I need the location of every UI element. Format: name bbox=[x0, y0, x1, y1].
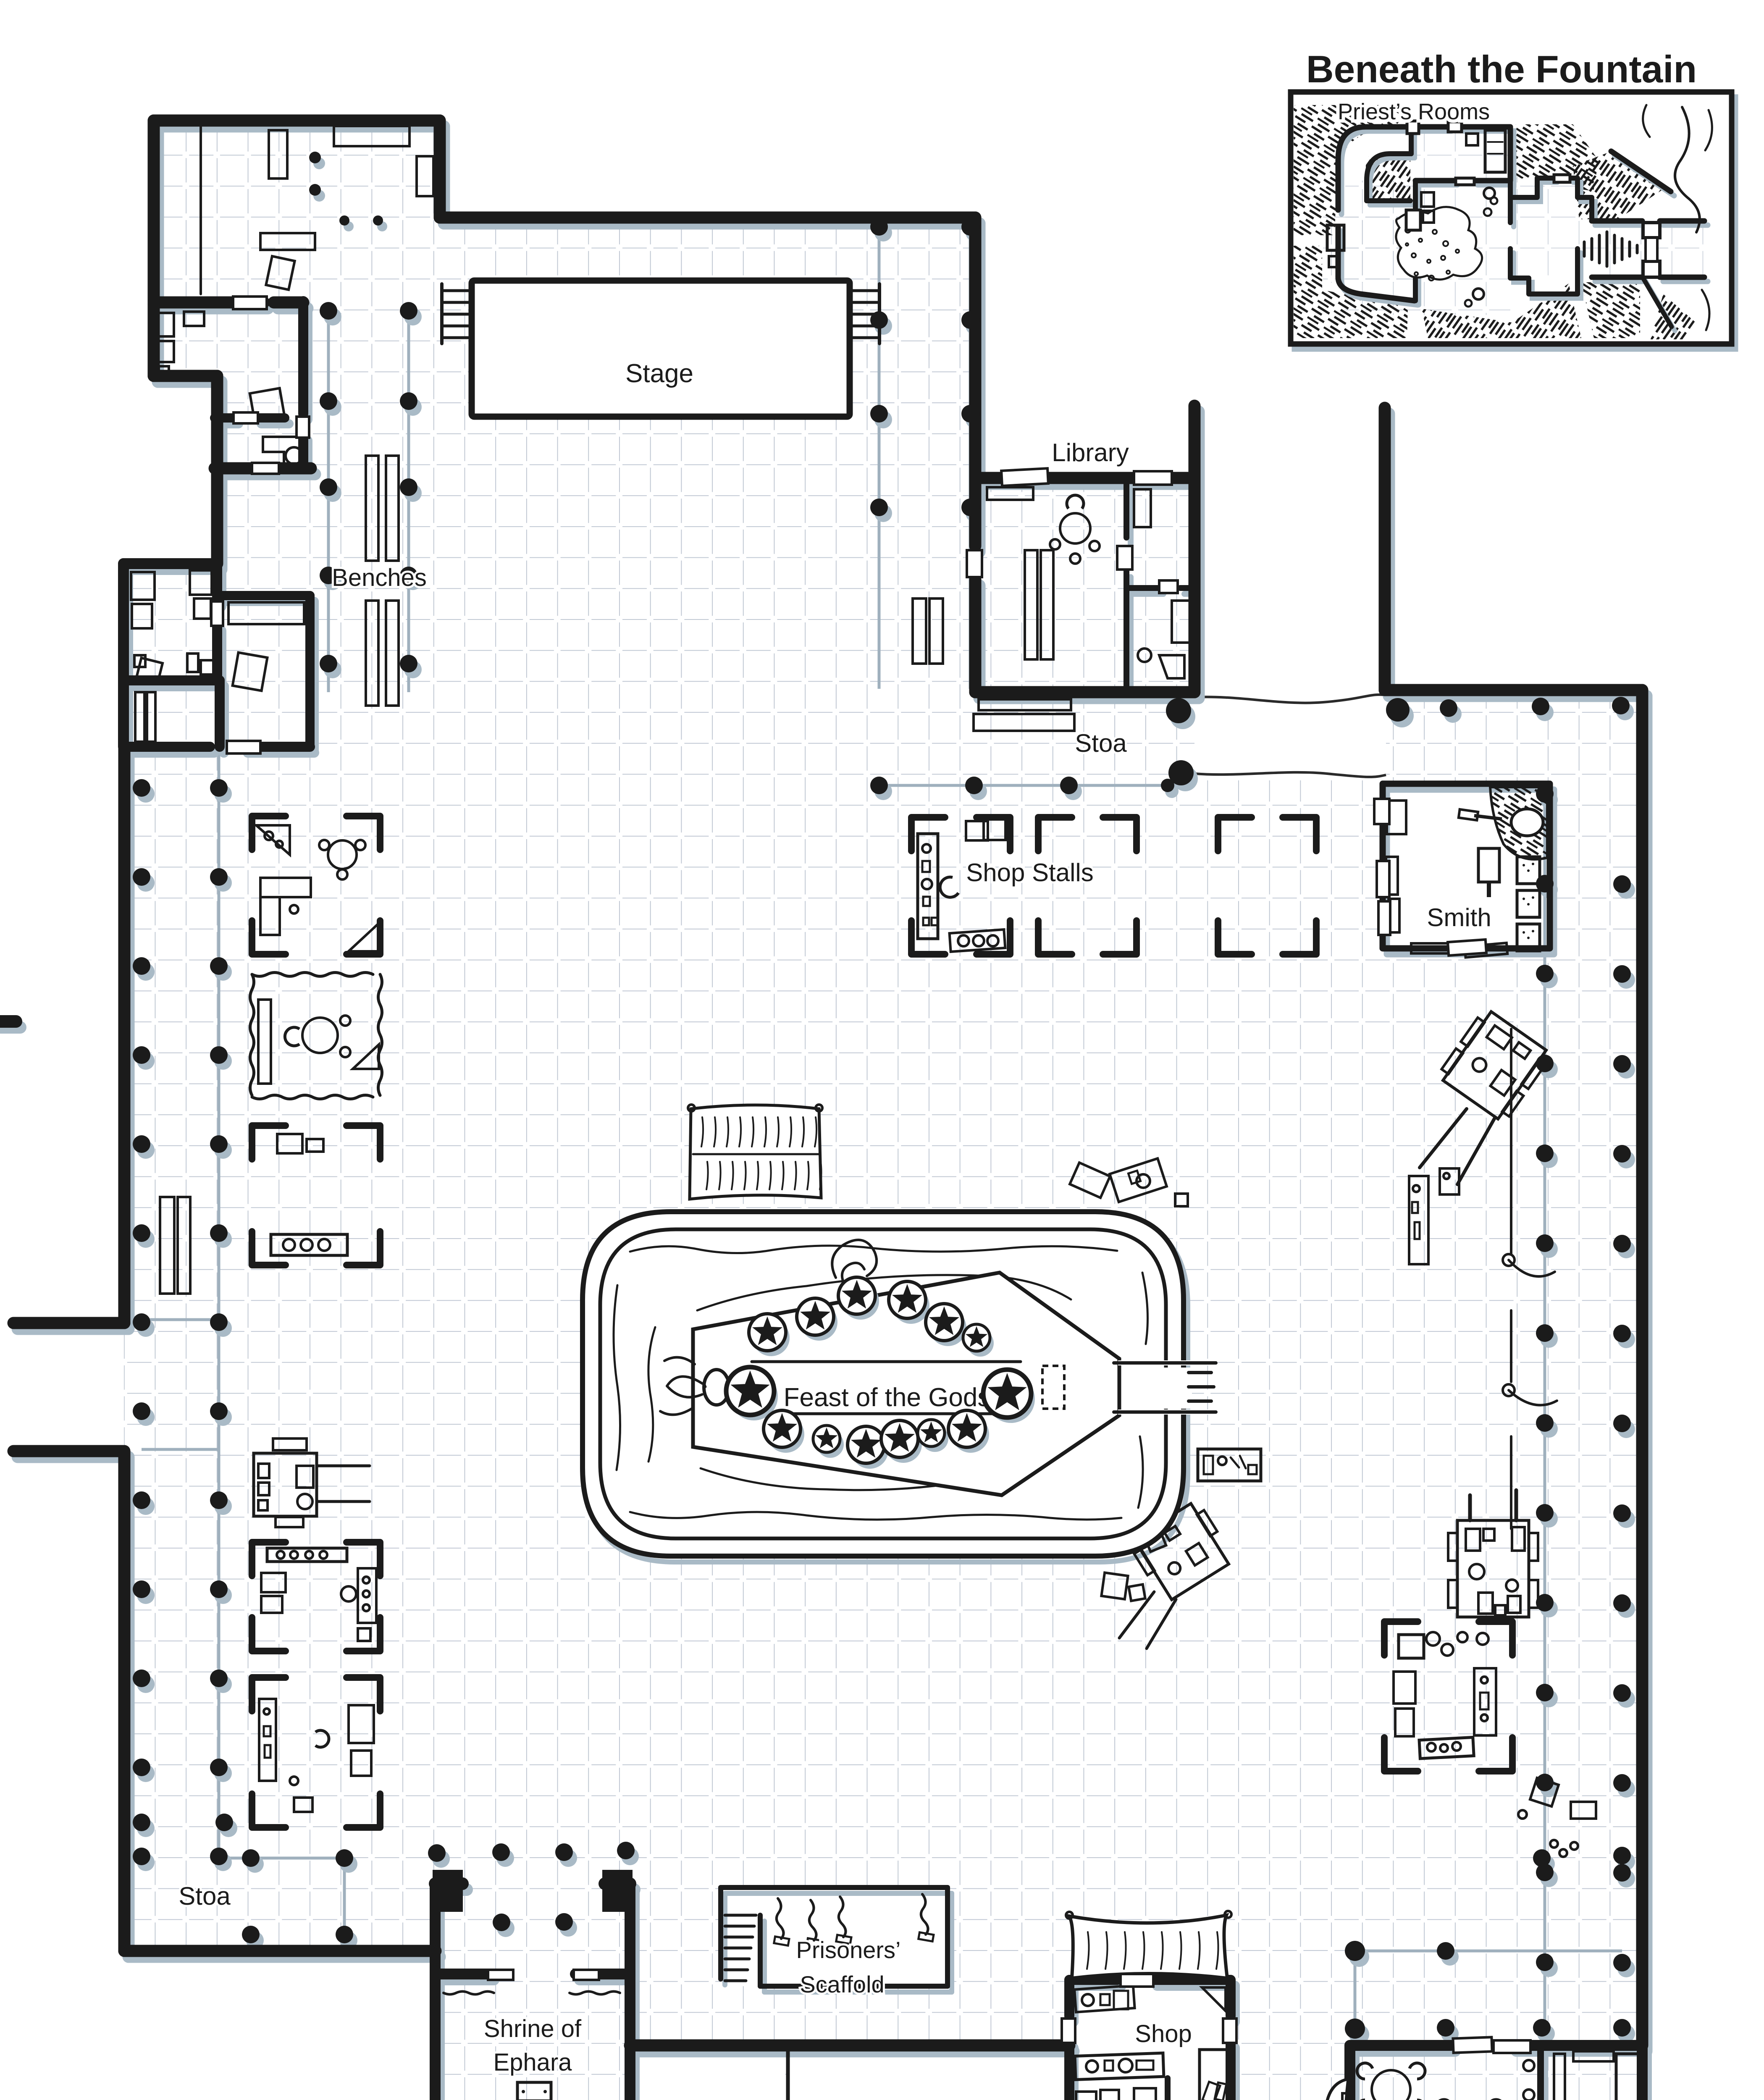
svg-text:Scaffold: Scaffold bbox=[800, 1971, 884, 1998]
svg-text:Shop: Shop bbox=[1135, 2020, 1192, 2047]
svg-text:Priest’s Rooms: Priest’s Rooms bbox=[1338, 99, 1490, 124]
svg-text:Smith: Smith bbox=[1427, 903, 1491, 932]
svg-text:Shop Stalls: Shop Stalls bbox=[966, 858, 1094, 887]
svg-text:Feast of the Gods: Feast of the Gods bbox=[784, 1383, 991, 1412]
svg-text:Prisoners’: Prisoners’ bbox=[796, 1937, 901, 1963]
svg-text:Shrine of: Shrine of bbox=[484, 2015, 582, 2042]
svg-text:Stage: Stage bbox=[625, 359, 693, 388]
svg-text:Stoa: Stoa bbox=[178, 1882, 231, 1910]
svg-text:Stoa: Stoa bbox=[1075, 729, 1127, 757]
svg-text:Beneath the Fountain: Beneath the Fountain bbox=[1306, 48, 1697, 91]
svg-text:Benches: Benches bbox=[332, 564, 427, 591]
svg-text:Library: Library bbox=[1052, 438, 1129, 467]
svg-text:Ephara: Ephara bbox=[493, 2049, 572, 2076]
